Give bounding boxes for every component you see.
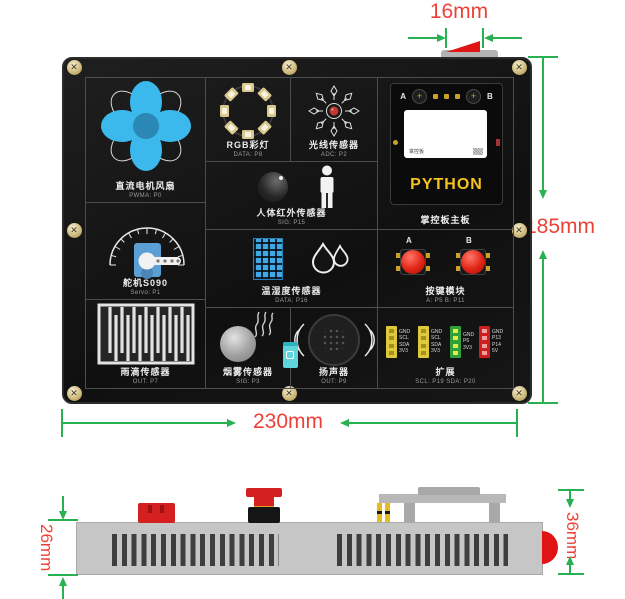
dim-width-label: 230mm	[238, 410, 338, 434]
gold-pad	[455, 94, 460, 99]
screw-icon: ✕	[67, 386, 82, 401]
vent-slots-right	[337, 534, 508, 566]
side-standoff	[489, 503, 500, 523]
module-label: 烟雾传感器	[206, 368, 290, 378]
rain-sensor-icon	[97, 303, 195, 365]
power-module-icon	[283, 342, 298, 368]
connector-yellow-icon	[418, 326, 429, 358]
side-button-base	[248, 507, 280, 523]
dim-side-height-label: 26mm	[36, 524, 56, 571]
module-port: DATA: P16	[206, 298, 377, 304]
sound-wave-right-icon	[363, 322, 375, 358]
gold-pad	[444, 94, 449, 99]
module-pir: 人体红外传感器 SIG: P15	[206, 162, 378, 230]
module-port: DATA: P8	[206, 152, 290, 158]
water-drops-icon	[309, 242, 351, 278]
pir-dome-icon	[258, 172, 288, 202]
module-label: 人体红外传感器	[206, 209, 377, 219]
screw-icon: ✕	[512, 60, 527, 75]
connector-red-icon	[479, 326, 490, 358]
key-button-b	[456, 245, 490, 279]
module-speaker: 扬声器 OUT: P9	[291, 308, 378, 388]
board-top-view: ✕ ✕ ✕ ✕ ✕ ✕ ✕ ✕	[62, 57, 532, 404]
screen-logo-text: 掌控板	[409, 148, 424, 155]
module-port: SIG: P3	[206, 379, 290, 385]
led-chip-icon	[496, 139, 500, 146]
vent-slots-left	[112, 534, 279, 566]
mainboard-button-a-label: A	[400, 92, 406, 101]
dim-top-width-label: 16mm	[414, 0, 504, 24]
module-label: 光线传感器	[291, 141, 377, 151]
screw-icon: ✕	[282, 60, 297, 75]
side-standoff	[404, 503, 415, 523]
module-light: 光线传感器 ADC: P2	[291, 78, 378, 162]
smoke-wisp-icon	[250, 309, 278, 339]
screw-icon: ✕	[67, 60, 82, 75]
module-fan: 直流电机风扇 PWMA: P0	[86, 78, 206, 203]
side-pin-header	[377, 503, 382, 522]
mainboard-pcb: A + + B 掌控板 PYTHON	[390, 83, 503, 205]
module-label: 扩展	[378, 368, 513, 378]
module-expansion: GND SCL SDA 3V3 GND SCL SDA 3V3	[378, 308, 513, 388]
qr-code-icon	[473, 148, 483, 155]
module-label: 扬声器	[291, 368, 377, 378]
expansion-connector-4: GND P13 P14 5V	[479, 326, 503, 358]
module-label: 直流电机风扇	[86, 182, 205, 192]
expansion-connector-2: GND SCL SDA 3V3	[418, 326, 442, 358]
connector-green-icon	[450, 326, 461, 358]
module-label: 温湿度传感器	[206, 287, 377, 297]
module-port: SIG: P15	[206, 220, 377, 226]
module-smoke: 烟雾传感器 SIG: P3	[206, 308, 291, 388]
module-mainboard: A + + B 掌控板 PYTHON 掌控板主板	[378, 78, 513, 230]
key-b-label: B	[466, 236, 472, 245]
module-label: 按键模块	[378, 287, 513, 297]
side-mainboard-block	[418, 487, 480, 495]
module-rgb: RGB彩灯 DATA: P8	[206, 78, 291, 162]
dim-side-total-label: 36mm	[562, 512, 582, 559]
connector-yellow-icon	[386, 326, 397, 358]
expansion-connector-1: GND SCL SDA 3V3	[386, 326, 410, 358]
module-label: 雨滴传感器	[86, 368, 205, 378]
key-a-label: A	[406, 236, 412, 245]
module-port: OUT: P7	[86, 379, 205, 385]
dht-grid-icon	[253, 238, 283, 280]
module-rain: 雨滴传感器 OUT: P7	[86, 300, 206, 388]
module-port: OUT: P9	[291, 379, 377, 385]
module-keys: A B 按键模块 A: P5 B: P11	[378, 230, 513, 308]
key-button-a	[396, 245, 430, 279]
module-port: PWMA: P0	[86, 193, 205, 199]
module-label: 掌控板主板	[378, 216, 513, 226]
antenna-wedge	[446, 41, 480, 52]
gold-pad	[433, 94, 438, 99]
side-mainboard-plate	[379, 494, 506, 503]
red-button-icon	[401, 250, 425, 274]
light-sensor-icon	[306, 83, 362, 139]
person-icon	[316, 165, 338, 209]
red-button-icon	[461, 250, 485, 274]
side-pin-header	[385, 503, 390, 522]
module-port: ADC: P2	[291, 152, 377, 158]
module-dht: 温湿度传感器 DATA: P16	[206, 230, 378, 308]
screw-icon: ✕	[67, 223, 82, 238]
mainboard-button-a: +	[412, 89, 427, 104]
side-red-connector	[138, 503, 175, 523]
side-button-cap	[246, 488, 282, 497]
module-servo: 舵机S090 Servo: P1	[86, 203, 206, 300]
python-touchpads: PYTHON	[391, 176, 502, 194]
module-grid: 直流电机风扇 PWMA: P0	[85, 77, 514, 389]
servo-icon	[90, 205, 202, 279]
oled-screen: 掌控板	[404, 110, 487, 158]
module-port: A: P5 B: P11	[378, 298, 513, 304]
module-port: Servo: P1	[86, 290, 205, 296]
module-label: 舵机S090	[86, 279, 205, 289]
mainboard-button-b-label: B	[487, 92, 493, 101]
mainboard-button-b: +	[466, 89, 481, 104]
rgb-ring-icon	[217, 80, 279, 142]
side-red-dome	[542, 531, 558, 564]
expansion-connector-3: GND P6 3V3	[450, 326, 474, 358]
mic-pad-icon	[393, 140, 398, 145]
module-port: SCL: P19 SDA: P20	[378, 379, 513, 385]
speaker-icon	[308, 314, 360, 366]
module-label: RGB彩灯	[206, 141, 290, 151]
fan-icon	[98, 80, 194, 176]
